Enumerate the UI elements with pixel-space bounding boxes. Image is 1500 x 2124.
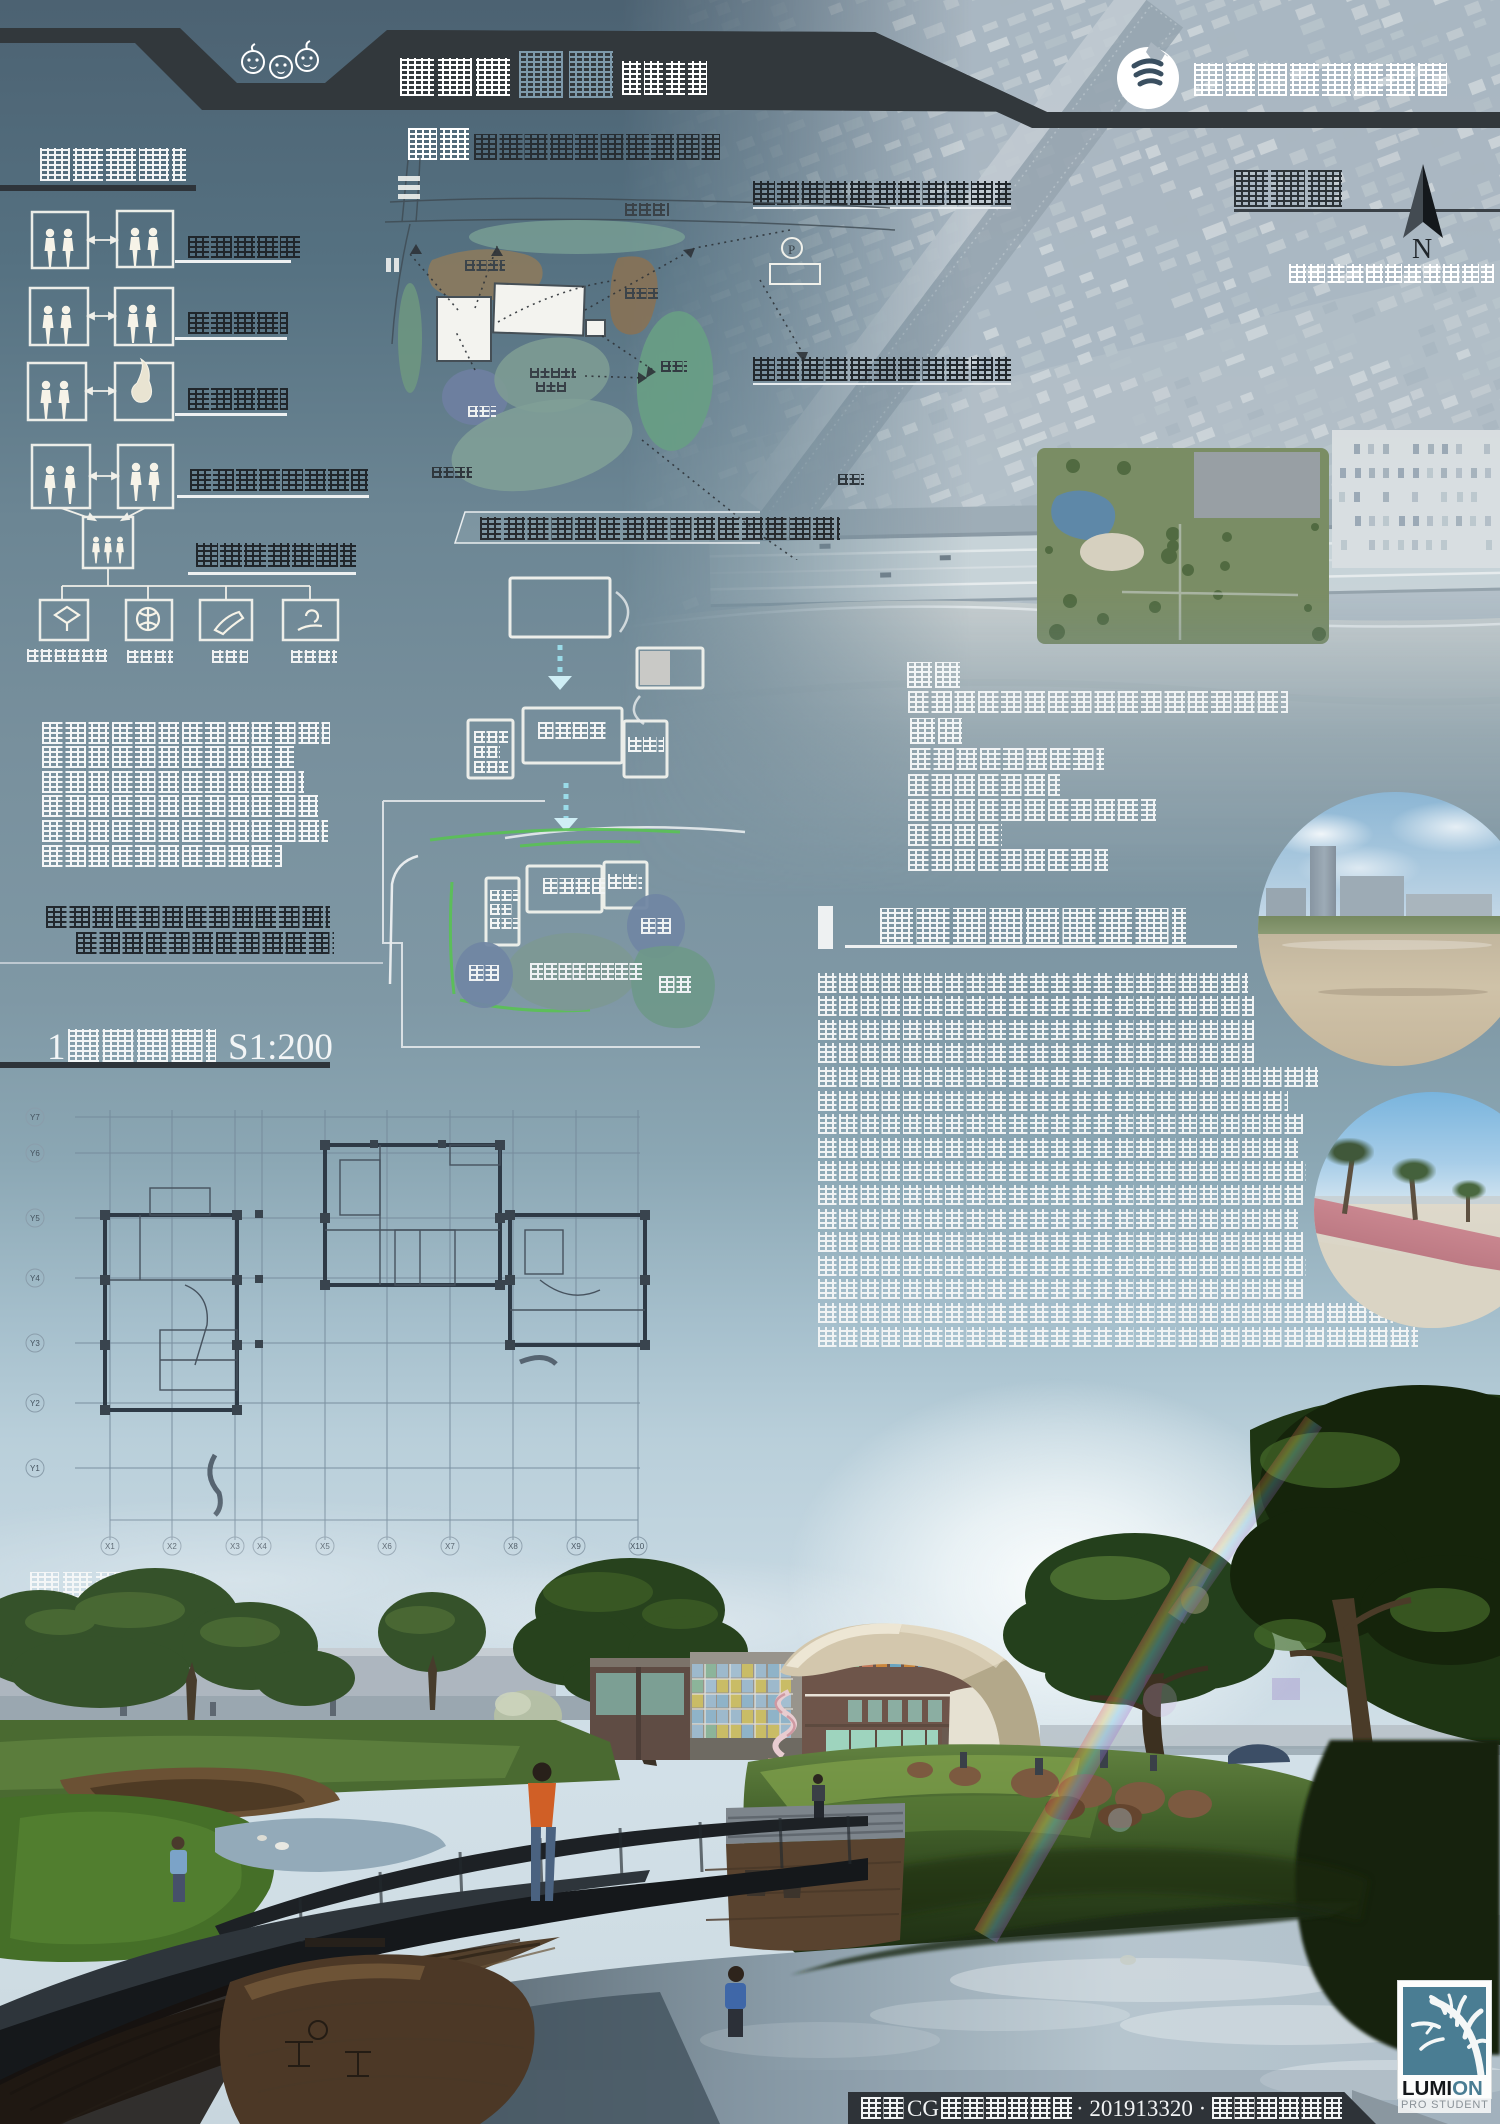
- svg-text:Y7: Y7: [30, 1113, 40, 1122]
- svg-text:Y6: Y6: [30, 1149, 40, 1158]
- svg-text:N: N: [1412, 234, 1432, 262]
- svg-text:Y5: Y5: [30, 1214, 40, 1223]
- svg-text:P: P: [788, 242, 795, 257]
